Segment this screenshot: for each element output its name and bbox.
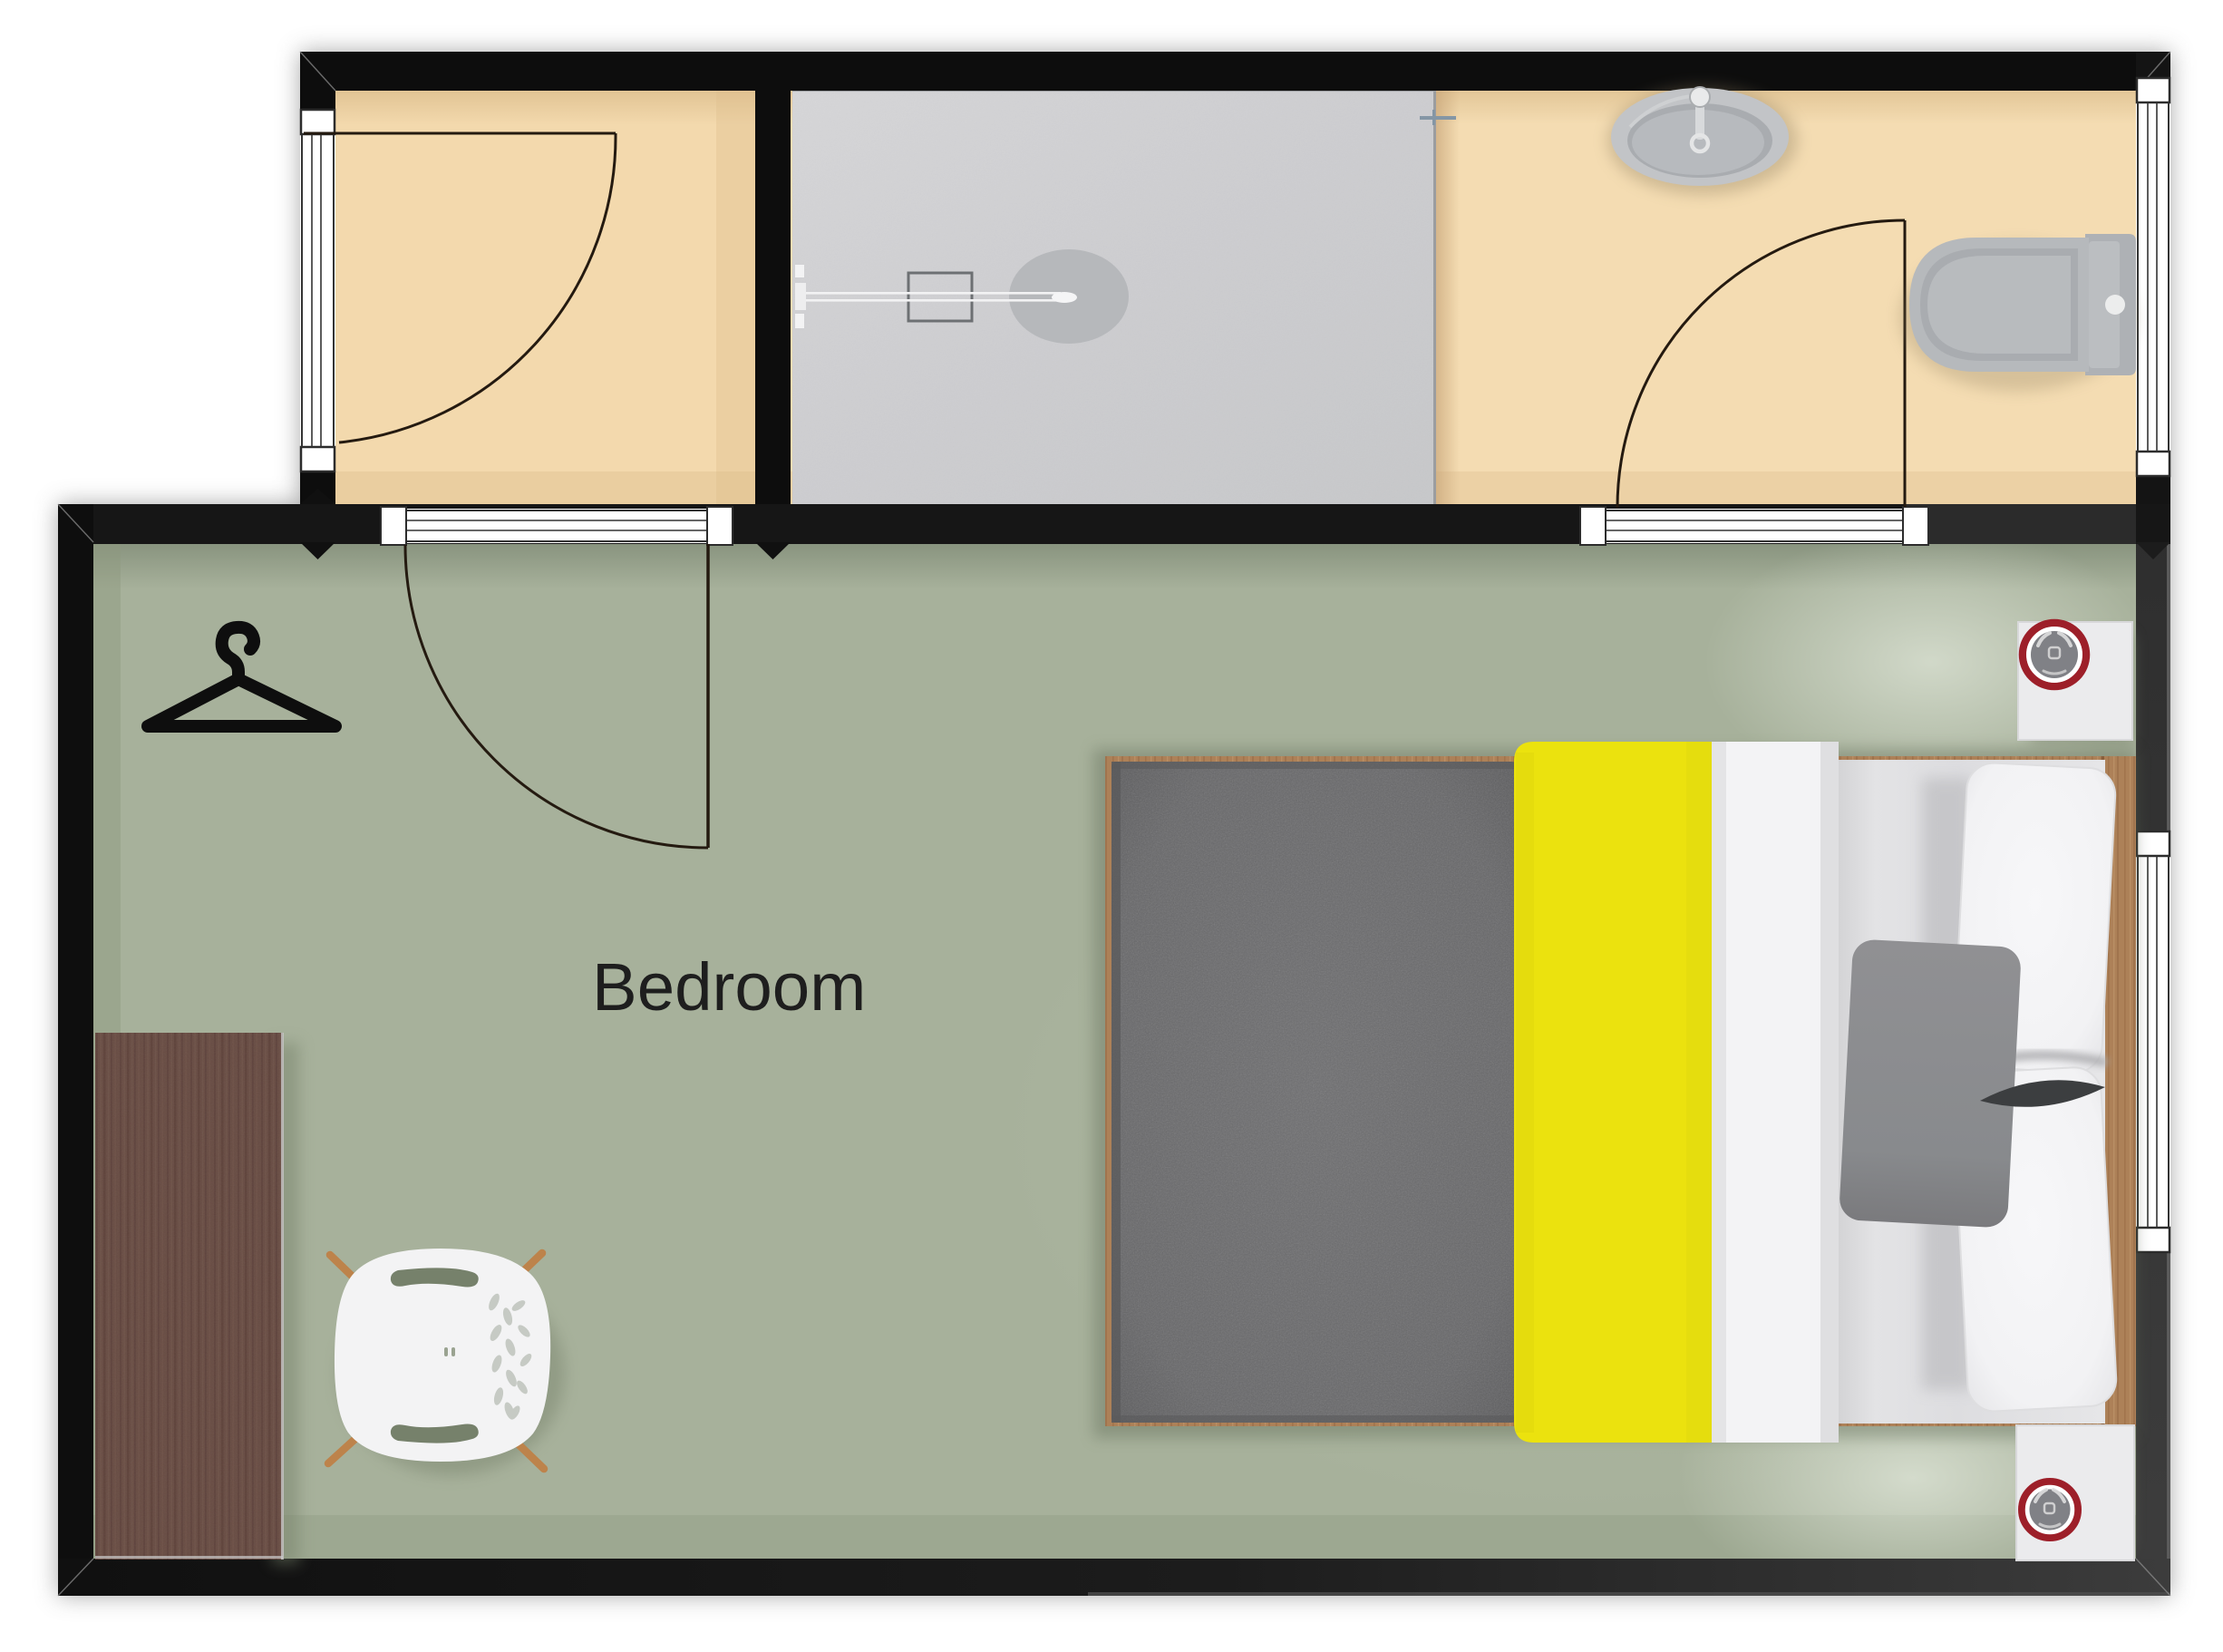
svg-text:Bedroom: Bedroom (592, 949, 866, 1025)
